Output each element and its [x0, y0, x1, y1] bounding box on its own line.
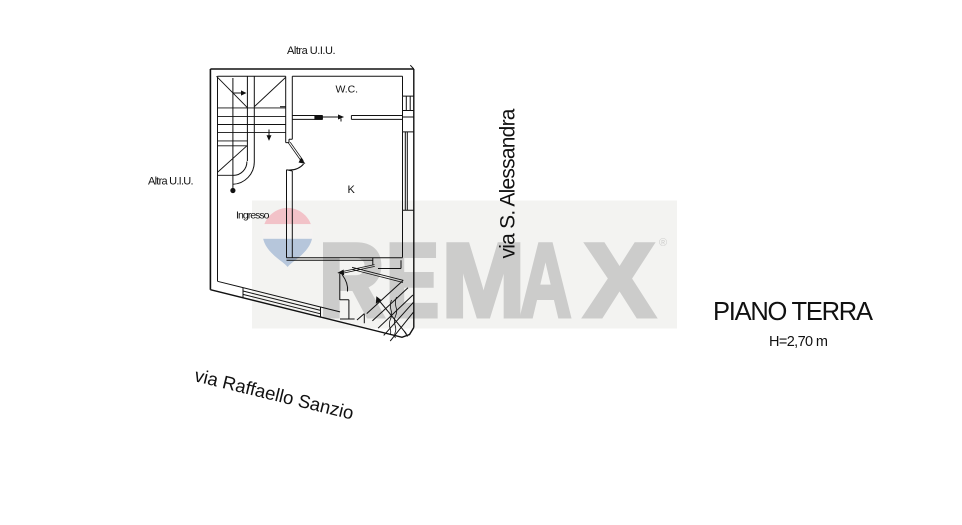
svg-text:via S. Alessandra: via S. Alessandra [497, 108, 520, 258]
svg-text:Altra U.I.U.: Altra U.I.U. [148, 176, 194, 188]
svg-text:W.C.: W.C. [336, 84, 359, 96]
svg-text:X: X [584, 223, 655, 340]
svg-text:®: ® [659, 237, 667, 249]
svg-text:H=2,70 m: H=2,70 m [769, 334, 828, 350]
svg-text:via Raffaello Sanzio: via Raffaello Sanzio [193, 364, 356, 423]
svg-text:A: A [520, 223, 572, 340]
svg-text:R: R [319, 223, 385, 340]
svg-text:PIANO TERRA: PIANO TERRA [713, 298, 873, 326]
svg-text:Ingresso: Ingresso [236, 210, 270, 222]
svg-text:E: E [386, 223, 440, 340]
svg-text:Altra U.I.U.: Altra U.I.U. [287, 45, 336, 57]
svg-text:K: K [348, 184, 356, 196]
